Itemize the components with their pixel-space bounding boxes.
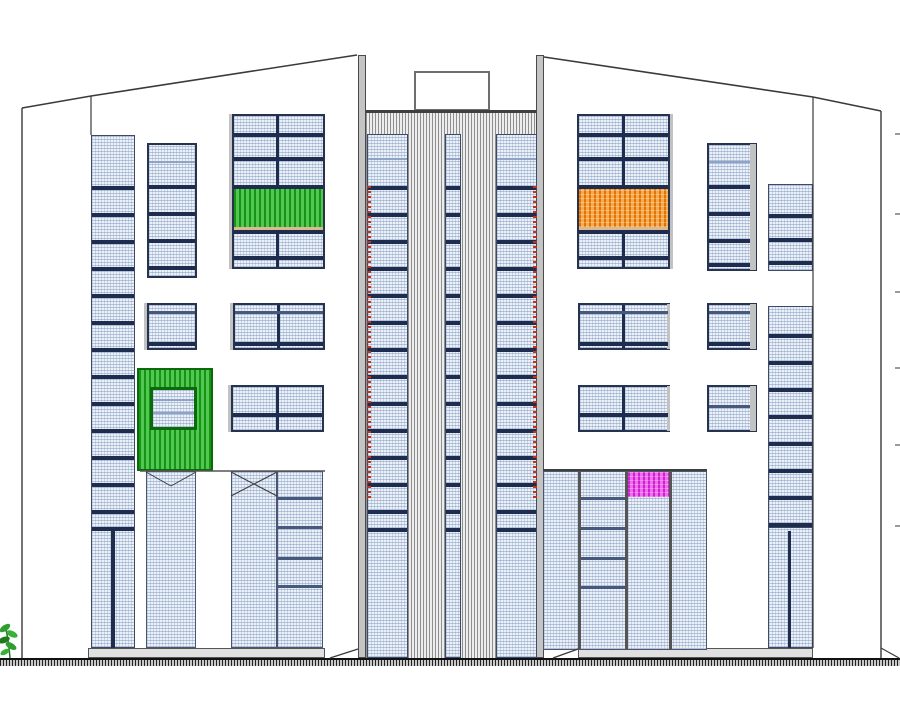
magenta-panel bbox=[628, 472, 669, 497]
lobby-col2-rails-1 bbox=[581, 527, 625, 530]
left-facade-strip-rails-6 bbox=[92, 348, 134, 352]
low-window-right-wide-mullion bbox=[622, 387, 625, 430]
tower-strip-left-rails-2 bbox=[368, 240, 407, 244]
tower-strip-center-raillight-0 bbox=[446, 158, 460, 160]
left-facade-strip-mullion bbox=[111, 531, 115, 648]
mid-window-right-wide-rail2-0 bbox=[580, 342, 668, 346]
tower-strip-right-raillight-0 bbox=[497, 158, 536, 160]
right-facade-strip-mid-rails-0 bbox=[769, 334, 812, 338]
right-column-window-raillight-0 bbox=[709, 161, 750, 163]
tower-top-line bbox=[366, 110, 536, 113]
entrance-side-panel-rails-0 bbox=[278, 497, 322, 500]
tower-strip-left-rails-3 bbox=[368, 267, 407, 271]
lobby-col2-rails-3 bbox=[581, 586, 625, 589]
tower-strip-left-raillight-0 bbox=[368, 158, 407, 160]
mid-window-left-wide-rail2-0 bbox=[235, 342, 323, 346]
orange-louver-band bbox=[579, 189, 668, 227]
entrance-side-panel-rails-3 bbox=[278, 585, 322, 588]
right-column-window-rails-2 bbox=[709, 239, 750, 243]
tower-strip-center-rails-1 bbox=[446, 213, 460, 217]
low-window-right-small-rail-0 bbox=[709, 405, 750, 408]
tower-strip-left-rails-0 bbox=[368, 186, 407, 190]
tower-strip-center-rails-0 bbox=[446, 186, 460, 190]
entrance-side-panel-rails-2 bbox=[278, 557, 322, 560]
level-ticks-right-0 bbox=[895, 133, 900, 135]
plinth-left bbox=[88, 648, 325, 658]
green-louver-band bbox=[234, 189, 323, 227]
left-column-window-rails-1 bbox=[149, 212, 195, 216]
tower-strip-left-rails-4 bbox=[368, 294, 407, 298]
ramp-left-of-tower bbox=[330, 649, 358, 658]
tower-strip-left-rails-5 bbox=[368, 321, 407, 325]
tower-strip-center-rails-13 bbox=[446, 528, 460, 532]
tower-strip-left-rails-10 bbox=[368, 456, 407, 460]
big-window-right-rails-0 bbox=[579, 133, 668, 137]
right-corner-ramp bbox=[881, 648, 899, 658]
tower-strip-center-rails-5 bbox=[446, 321, 460, 325]
lobby-mullion-3 bbox=[669, 471, 672, 650]
tower-strip-right-rails-0 bbox=[497, 186, 536, 190]
left-facade-strip-rails-2 bbox=[92, 240, 134, 244]
tower-strip-left-rails-11 bbox=[368, 483, 407, 487]
tower-strip-left-rails-13 bbox=[368, 528, 407, 532]
left-facade-strip-rails-8 bbox=[92, 402, 134, 406]
tower-strip-right-rails-1 bbox=[497, 213, 536, 217]
tower-strip-center-rails-9 bbox=[446, 429, 460, 433]
lobby-mullion-2 bbox=[625, 471, 628, 650]
mid-window-left-small-rail1-0 bbox=[149, 311, 195, 314]
tower-strip-right-rails-3 bbox=[497, 267, 536, 271]
big-window-left-rails-4 bbox=[234, 256, 323, 260]
left-roof-segment-2 bbox=[91, 55, 357, 96]
tower-strip-center-rails-7 bbox=[446, 375, 460, 379]
lobby-col2-rails-0 bbox=[581, 497, 625, 500]
tower-strip-right-rails-8 bbox=[497, 402, 536, 406]
right-facade-strip-mid-rails-1 bbox=[769, 361, 812, 365]
tower-strip-center-rails-4 bbox=[446, 294, 460, 298]
tower-strip-right-rails-12 bbox=[497, 510, 536, 514]
tower-strip-right-rails-7 bbox=[497, 375, 536, 379]
roof-box bbox=[414, 71, 490, 111]
left-facade-strip-rails-3 bbox=[92, 267, 134, 271]
tower-strip-center-rails-11 bbox=[446, 483, 460, 487]
green-balcony-window bbox=[150, 387, 197, 430]
tower-strip-center-rails-2 bbox=[446, 240, 460, 244]
tower-strip-center-rails-10 bbox=[446, 456, 460, 460]
tower-strip-left-rails-7 bbox=[368, 375, 407, 379]
low-window-right-small-shadow bbox=[750, 386, 756, 431]
left-roof-segment-1 bbox=[22, 96, 91, 108]
ground-strip bbox=[0, 658, 900, 666]
right-facade-strip-upper-rails-2 bbox=[769, 261, 812, 265]
low-window-right-wide-shadow bbox=[667, 386, 670, 431]
tower-strip-left-rails-8 bbox=[368, 402, 407, 406]
tower-strip-right-rails-10 bbox=[497, 456, 536, 460]
low-window-right-wide-rail-0 bbox=[580, 413, 668, 417]
right-column-window-rails-1 bbox=[709, 212, 750, 216]
level-ticks-right-4 bbox=[895, 444, 900, 446]
big-window-right-shadow bbox=[670, 114, 673, 269]
tower-strip-right-rails-13 bbox=[497, 528, 536, 532]
tower-strip-center-rails-3 bbox=[446, 267, 460, 271]
right-facade-strip-mid-rails-6 bbox=[769, 496, 812, 500]
left-facade-strip-rails-4 bbox=[92, 294, 134, 298]
level-ticks-right-5 bbox=[895, 525, 900, 527]
right-roof-segment-1 bbox=[544, 57, 813, 97]
right-column-window-shadow bbox=[750, 144, 756, 270]
tower-strip-center-rails-12 bbox=[446, 510, 460, 514]
tower-strip-right-rails-6 bbox=[497, 348, 536, 352]
right-facade-strip-mid-rails-5 bbox=[769, 469, 812, 473]
entrance-door-right bbox=[231, 471, 277, 648]
mid-window-right-small-shadow bbox=[750, 304, 756, 349]
tower-strip-left-rails-12 bbox=[368, 510, 407, 514]
left-facade-strip-rails-12 bbox=[92, 510, 134, 514]
tower-strip-left-rails-1 bbox=[368, 213, 407, 217]
tower-strip-right-rails-5 bbox=[497, 321, 536, 325]
ramp-right-of-tower bbox=[553, 649, 578, 658]
big-window-right-rails-3 bbox=[579, 230, 668, 234]
tower-strip-right-rails-9 bbox=[497, 429, 536, 433]
pilaster-left bbox=[358, 55, 366, 658]
tower-red-ticks-left bbox=[367, 186, 371, 498]
tower-strip-center-rails-8 bbox=[446, 402, 460, 406]
left-column-window-rails-3 bbox=[149, 266, 195, 270]
mid-window-right-small-rail2-0 bbox=[709, 342, 750, 346]
entrance-side-panel-rails-1 bbox=[278, 526, 322, 529]
big-window-left-rails-0 bbox=[234, 133, 323, 137]
right-roof-segment-2 bbox=[813, 97, 881, 111]
low-window-left-wide-mullion bbox=[276, 387, 279, 430]
green-band-sill bbox=[234, 227, 323, 230]
tower-strip-center-rails-6 bbox=[446, 348, 460, 352]
big-window-left-rails-3 bbox=[234, 230, 323, 234]
big-window-left-rails-1 bbox=[234, 157, 323, 161]
left-column-window-rails-2 bbox=[149, 239, 195, 243]
green-balcony-window-rails-1 bbox=[153, 412, 194, 414]
left-facade-strip-rails-0 bbox=[92, 186, 134, 190]
big-window-right-rails-4 bbox=[579, 256, 668, 260]
left-column-window bbox=[147, 143, 197, 278]
mid-window-right-small-rail1-0 bbox=[709, 311, 750, 314]
lobby-col2-rails-2 bbox=[581, 557, 625, 560]
right-facade-strip-upper-rails-1 bbox=[769, 238, 812, 242]
green-balcony-window-rails-0 bbox=[153, 399, 194, 401]
tower-strip-right-rails-4 bbox=[497, 294, 536, 298]
left-facade-strip-rails-1 bbox=[92, 213, 134, 217]
right-column-window-rails-3 bbox=[709, 263, 750, 267]
right-facade-strip-mid-rails-3 bbox=[769, 415, 812, 419]
tower-red-ticks-right bbox=[533, 186, 537, 498]
right-column-window-rails-0 bbox=[709, 185, 750, 189]
right-facade-strip-lower-mullion bbox=[788, 531, 791, 648]
tower-strip-left-rails-6 bbox=[368, 348, 407, 352]
shrub-plant bbox=[0, 622, 19, 658]
left-facade-strip-rails-5 bbox=[92, 321, 134, 325]
mid-window-right-wide-rail1-0 bbox=[580, 311, 668, 314]
left-column-window-rails-0 bbox=[149, 185, 195, 189]
elevation-drawing-canvas bbox=[0, 0, 900, 701]
level-ticks-right-3 bbox=[895, 367, 900, 369]
orange-band-sill bbox=[579, 227, 668, 230]
right-facade-strip-mid-rails-4 bbox=[769, 442, 812, 446]
right-facade-strip-upper-rails-0 bbox=[769, 214, 812, 218]
right-facade-strip-upper bbox=[768, 184, 813, 271]
big-window-right-rails-1 bbox=[579, 157, 668, 161]
tower-strip-right-rails-11 bbox=[497, 483, 536, 487]
mid-window-left-wide-rail1-0 bbox=[235, 311, 323, 314]
left-facade-strip-rails-11 bbox=[92, 483, 134, 487]
left-facade-strip-rails-7 bbox=[92, 375, 134, 379]
level-ticks-right-2 bbox=[895, 291, 900, 293]
right-facade-strip-mid-rails-2 bbox=[769, 388, 812, 392]
left-column-window-raillight-0 bbox=[149, 161, 195, 163]
low-window-left-wide-rail-0 bbox=[233, 413, 322, 417]
tower-strip-right-rails-2 bbox=[497, 240, 536, 244]
mid-window-left-small-rail2-0 bbox=[149, 342, 195, 346]
level-ticks-right-1 bbox=[895, 213, 900, 215]
left-facade-strip-rails-10 bbox=[92, 456, 134, 460]
left-facade-strip-rails-9 bbox=[92, 429, 134, 433]
tower-strip-left-rails-9 bbox=[368, 429, 407, 433]
entrance-door-left bbox=[146, 471, 196, 648]
